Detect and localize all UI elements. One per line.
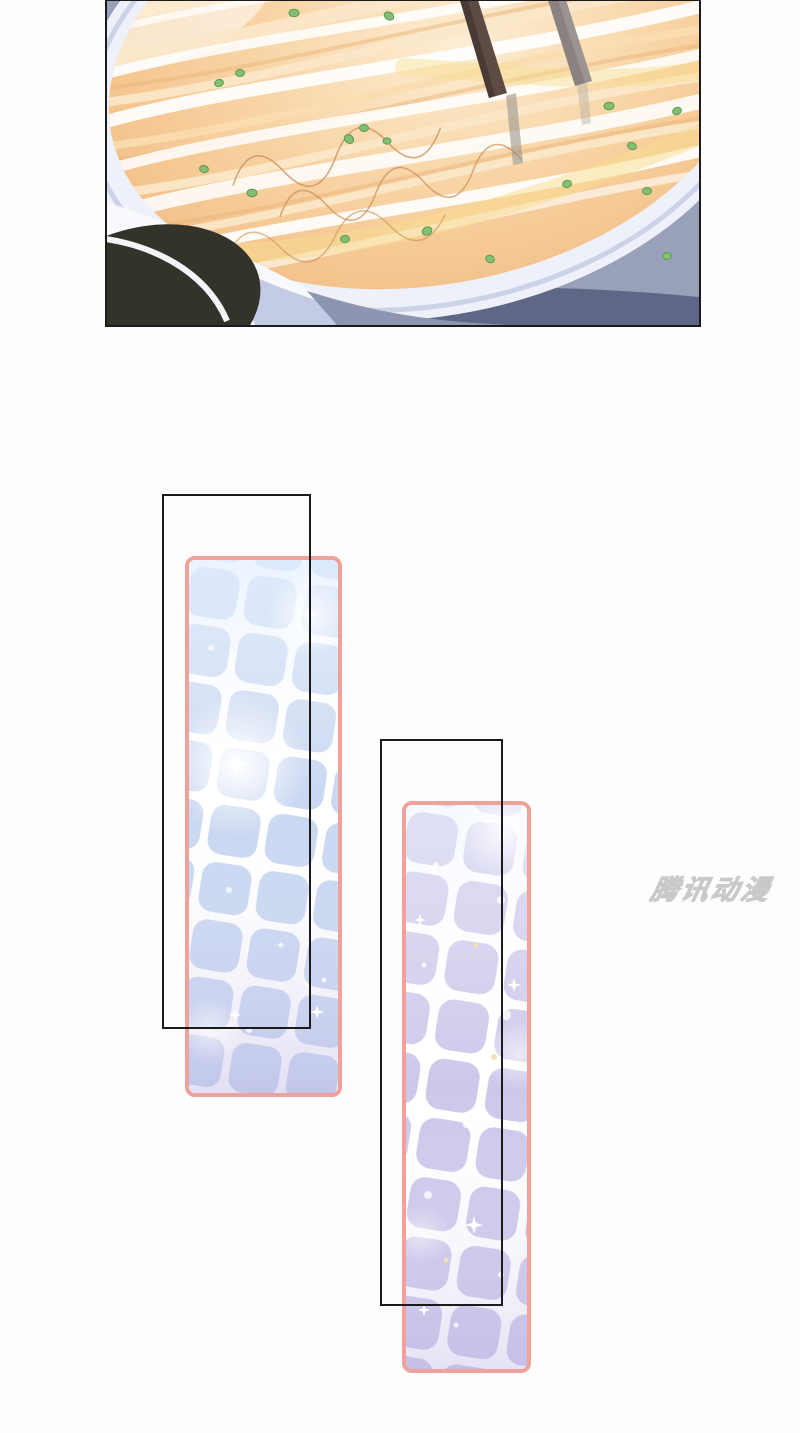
noodle-pan-illustration bbox=[107, 1, 699, 325]
watermark-logo: 腾讯动漫 bbox=[648, 868, 776, 907]
tile-panel-frame-right bbox=[380, 739, 503, 1306]
food-panel bbox=[105, 0, 701, 327]
tile-panel-frame-left bbox=[162, 494, 311, 1029]
comic-page: 腾讯动漫 bbox=[0, 0, 800, 1433]
